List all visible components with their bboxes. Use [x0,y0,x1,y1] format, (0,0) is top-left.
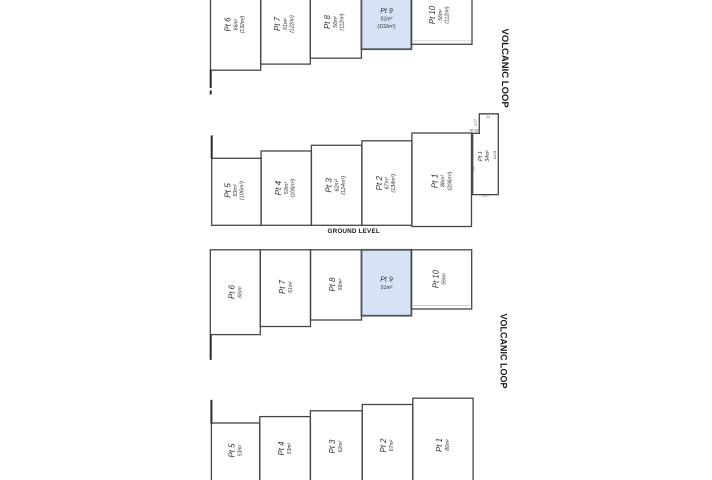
svg-text:Pt 6: Pt 6 [224,17,233,32]
svg-text:(122m²): (122m²) [290,15,296,33]
svg-text:53m²: 53m² [238,444,244,456]
svg-text:Pt 4: Pt 4 [277,441,286,456]
svg-text:62m²: 62m² [338,440,344,452]
svg-text:51m²: 51m² [381,17,393,23]
svg-text:86m²: 86m² [445,439,451,451]
svg-text:P.R.: P.R. [472,165,476,172]
svg-text:60.93: 60.93 [470,129,479,133]
svg-text:Pt 9: Pt 9 [380,277,393,284]
svg-text:VOLCANIC LOOP: VOLCANIC LOOP [499,29,510,109]
svg-text:Pt 3: Pt 3 [328,439,337,454]
svg-text:(132m²): (132m²) [240,15,246,33]
svg-text:Pt 2: Pt 2 [379,438,388,453]
svg-text:36.5: 36.5 [482,193,489,197]
svg-text:Pt 5: Pt 5 [228,443,237,458]
svg-text:56m²: 56m² [338,278,344,290]
svg-text:(112m²): (112m²) [445,6,451,23]
svg-text:53m²: 53m² [287,442,293,454]
svg-text:51m²: 51m² [381,285,393,291]
svg-text:VOLCANIC LOOP: VOLCANIC LOOP [499,313,509,388]
svg-text:86m²: 86m² [440,175,446,187]
svg-text:66m²: 66m² [233,18,239,30]
svg-text:10.01: 10.01 [493,151,497,160]
svg-text:(134m²): (134m²) [391,174,397,193]
svg-text:56m²: 56m² [333,16,339,28]
svg-text:GROUND LEVEL: GROUND LEVEL [327,228,379,235]
svg-text:Pt 7: Pt 7 [278,279,287,294]
svg-text:61m²: 61m² [288,281,294,293]
svg-text:56m²: 56m² [442,273,448,285]
svg-text:Pt 3: Pt 3 [325,178,334,193]
svg-text:67m²: 67m² [385,177,391,189]
svg-text:(106m²): (106m²) [240,181,246,200]
svg-text:12: 12 [486,115,490,119]
svg-text:Pt 2: Pt 2 [375,175,384,190]
svg-text:(206m²): (206m²) [447,171,453,190]
svg-text:Pt 1: Pt 1 [431,174,440,189]
svg-text:Pt 4: Pt 4 [274,180,283,195]
svg-text:66m²: 66m² [238,286,244,298]
svg-text:(102m²): (102m²) [377,24,395,30]
svg-text:4.77: 4.77 [474,118,478,126]
svg-text:56m²: 56m² [438,9,444,21]
svg-text:34m²: 34m² [485,150,491,162]
svg-text:Pt 6: Pt 6 [228,284,237,299]
svg-text:62m²: 62m² [334,179,340,191]
svg-text:Pt 8: Pt 8 [323,14,332,29]
svg-text:(112m²): (112m²) [339,13,345,30]
svg-text:Pt 8: Pt 8 [328,277,337,292]
svg-text:Pt 1: Pt 1 [478,151,484,161]
svg-text:Pt 1: Pt 1 [435,438,444,452]
svg-text:Pt 10: Pt 10 [432,269,441,288]
svg-text:53m²: 53m² [284,182,290,194]
svg-text:Pt 10: Pt 10 [428,5,437,24]
svg-text:Pt 7: Pt 7 [273,16,282,31]
svg-text:53m²: 53m² [233,184,239,196]
svg-text:(106m²): (106m²) [291,178,297,197]
svg-text:61m²: 61m² [283,18,289,30]
svg-text:67m²: 67m² [389,439,395,451]
svg-text:(124m²): (124m²) [341,176,347,195]
svg-text:Pt 5: Pt 5 [223,183,232,198]
svg-text:Pt 9: Pt 9 [380,8,393,15]
